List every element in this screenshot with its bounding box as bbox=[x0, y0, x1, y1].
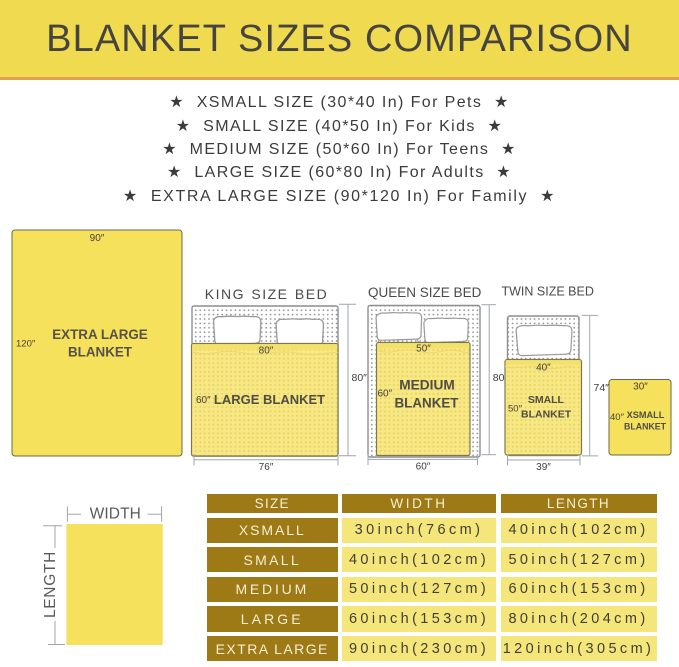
svg-text:KING SIZE BED: KING SIZE BED bbox=[205, 286, 328, 302]
svg-text:WIDTH: WIDTH bbox=[90, 506, 141, 523]
svg-text:BLANKET: BLANKET bbox=[68, 344, 133, 359]
svg-text:60″: 60″ bbox=[378, 389, 393, 400]
svg-text:60″: 60″ bbox=[196, 395, 211, 406]
svg-text:80″: 80″ bbox=[352, 372, 368, 384]
svg-text:MEDIUM: MEDIUM bbox=[399, 377, 455, 392]
svg-text:BLANKET: BLANKET bbox=[521, 409, 572, 421]
svg-text:74″: 74″ bbox=[594, 382, 610, 394]
svg-text:BLANKET: BLANKET bbox=[395, 395, 460, 410]
svg-text:SMALL: SMALL bbox=[528, 394, 565, 406]
svg-text:80″: 80″ bbox=[259, 345, 274, 356]
svg-text:90″: 90″ bbox=[90, 233, 105, 244]
svg-text:BLANKET: BLANKET bbox=[624, 422, 667, 432]
svg-text:60″: 60″ bbox=[416, 462, 431, 473]
svg-text:LARGE BLANKET: LARGE BLANKET bbox=[214, 392, 325, 407]
svg-text:40″: 40″ bbox=[536, 363, 551, 374]
svg-text:76″: 76″ bbox=[259, 462, 274, 473]
svg-text:30″: 30″ bbox=[633, 382, 648, 393]
svg-text:120″: 120″ bbox=[16, 339, 36, 350]
svg-text:40″: 40″ bbox=[610, 412, 625, 423]
svg-text:QUEEN SIZE BED: QUEEN SIZE BED bbox=[368, 285, 482, 300]
svg-text:50″: 50″ bbox=[416, 344, 431, 355]
svg-text:TWIN SIZE BED: TWIN SIZE BED bbox=[502, 285, 594, 299]
svg-text:EXTRA LARGE: EXTRA LARGE bbox=[52, 327, 148, 342]
svg-text:XSMALL: XSMALL bbox=[627, 410, 665, 420]
svg-text:LENGTH: LENGTH bbox=[42, 551, 59, 618]
svg-text:39″: 39″ bbox=[536, 462, 551, 473]
